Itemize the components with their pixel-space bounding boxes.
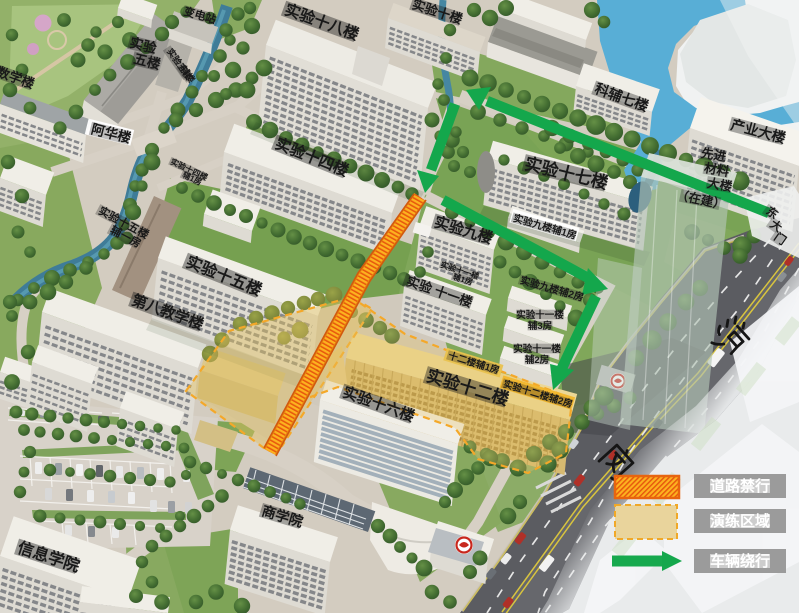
svg-text:辅2房: 辅2房 — [525, 354, 549, 366]
svg-text:演练区域: 演练区域 — [710, 512, 770, 530]
svg-text:道路禁行: 道路禁行 — [710, 477, 770, 495]
svg-text:实验十一楼: 实验十一楼 — [513, 343, 561, 355]
svg-text:实验十一楼: 实验十一楼 — [516, 309, 564, 321]
svg-text:车辆绕行: 车辆绕行 — [710, 552, 770, 570]
svg-text:辅3房: 辅3房 — [528, 320, 552, 332]
